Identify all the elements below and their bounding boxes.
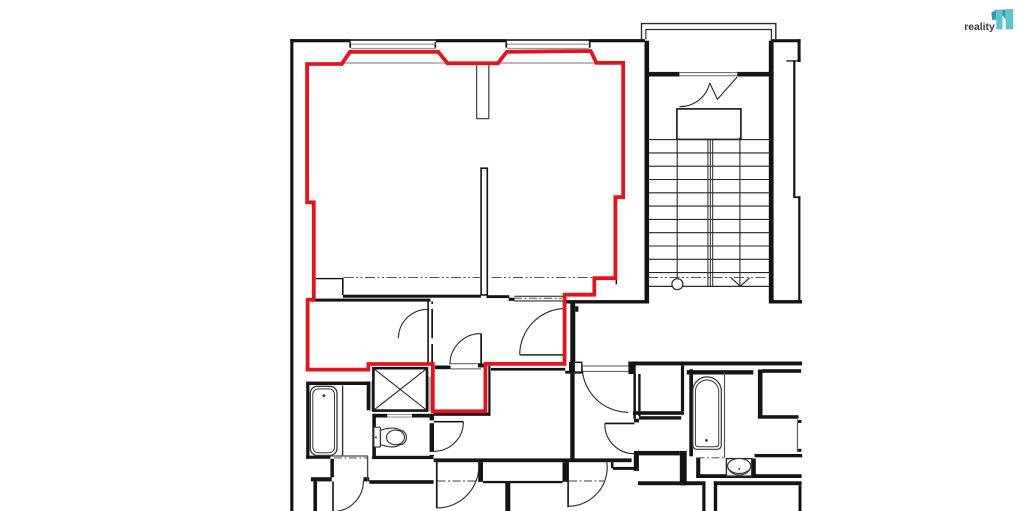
svg-text:reality: reality	[964, 22, 995, 33]
